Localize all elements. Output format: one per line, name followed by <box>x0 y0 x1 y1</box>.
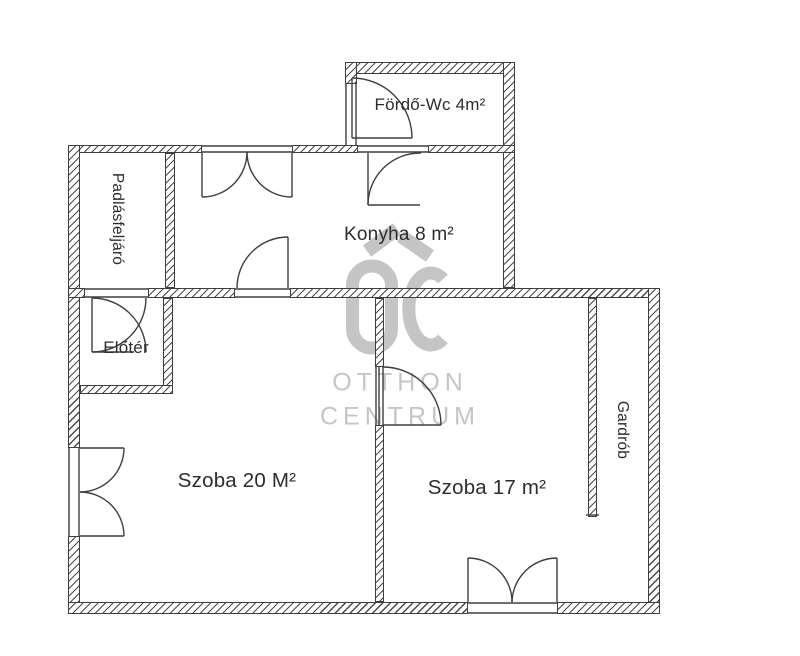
room-divider-door-swing <box>379 367 441 425</box>
kitchen-french-door-swing <box>202 152 292 197</box>
room-label-wardrobe: Gardrób <box>613 401 631 459</box>
room-label-bathroom: Fördő-Wc 4m² <box>374 95 485 115</box>
room-label-room-20: Szoba 20 M² <box>178 469 296 493</box>
room17-french-door-swing <box>468 558 557 602</box>
room-label-kitchen: Konyha 8 m² <box>344 224 454 246</box>
room-label-attic-access: Padlásfeljáró <box>108 173 126 265</box>
room20-french-door-swing <box>80 448 124 536</box>
kitchen-room20-door-swing <box>237 237 288 288</box>
kitchen-bath-door-swing <box>368 153 421 205</box>
room-label-hall: Előtér <box>103 338 149 358</box>
room-label-room-17: Szoba 17 m² <box>428 476 546 500</box>
floor-plan: OTTHON CENTRUM <box>0 0 800 656</box>
